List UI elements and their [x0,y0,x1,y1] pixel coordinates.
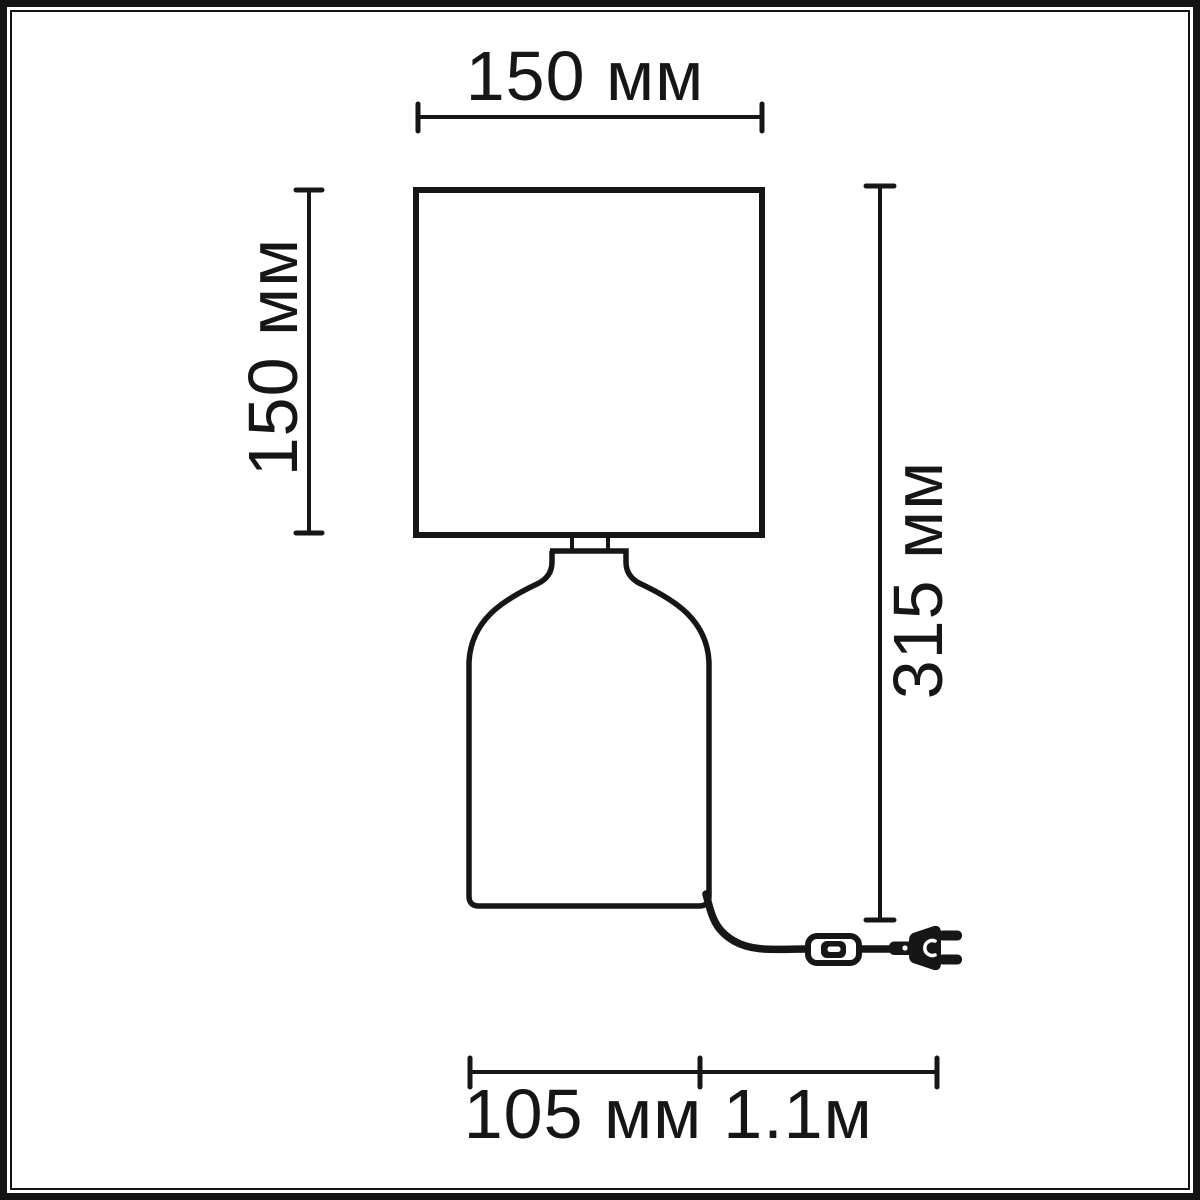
shade-width-label: 150 мм [466,37,705,115]
power-cord-assembly [706,894,962,970]
base-width-label: 105 мм [464,1075,703,1153]
cable-length-label: 1.1м [723,1075,872,1153]
shade-height-label: 150 мм [234,238,312,477]
inline-switch-icon [808,936,859,963]
lamp-base-outline [469,551,709,906]
total-height-label: 315 мм [879,461,957,700]
power-cord [706,894,807,949]
lampshade-outline [416,190,762,535]
power-plug-icon [889,926,962,970]
dimension-diagram-page: 150 мм 150 мм 315 мм 105 мм 1.1м [0,0,1200,1200]
lamp-outline [416,190,762,906]
lamp-dimension-diagram: 150 мм 150 мм 315 мм 105 мм 1.1м [0,0,1200,1200]
